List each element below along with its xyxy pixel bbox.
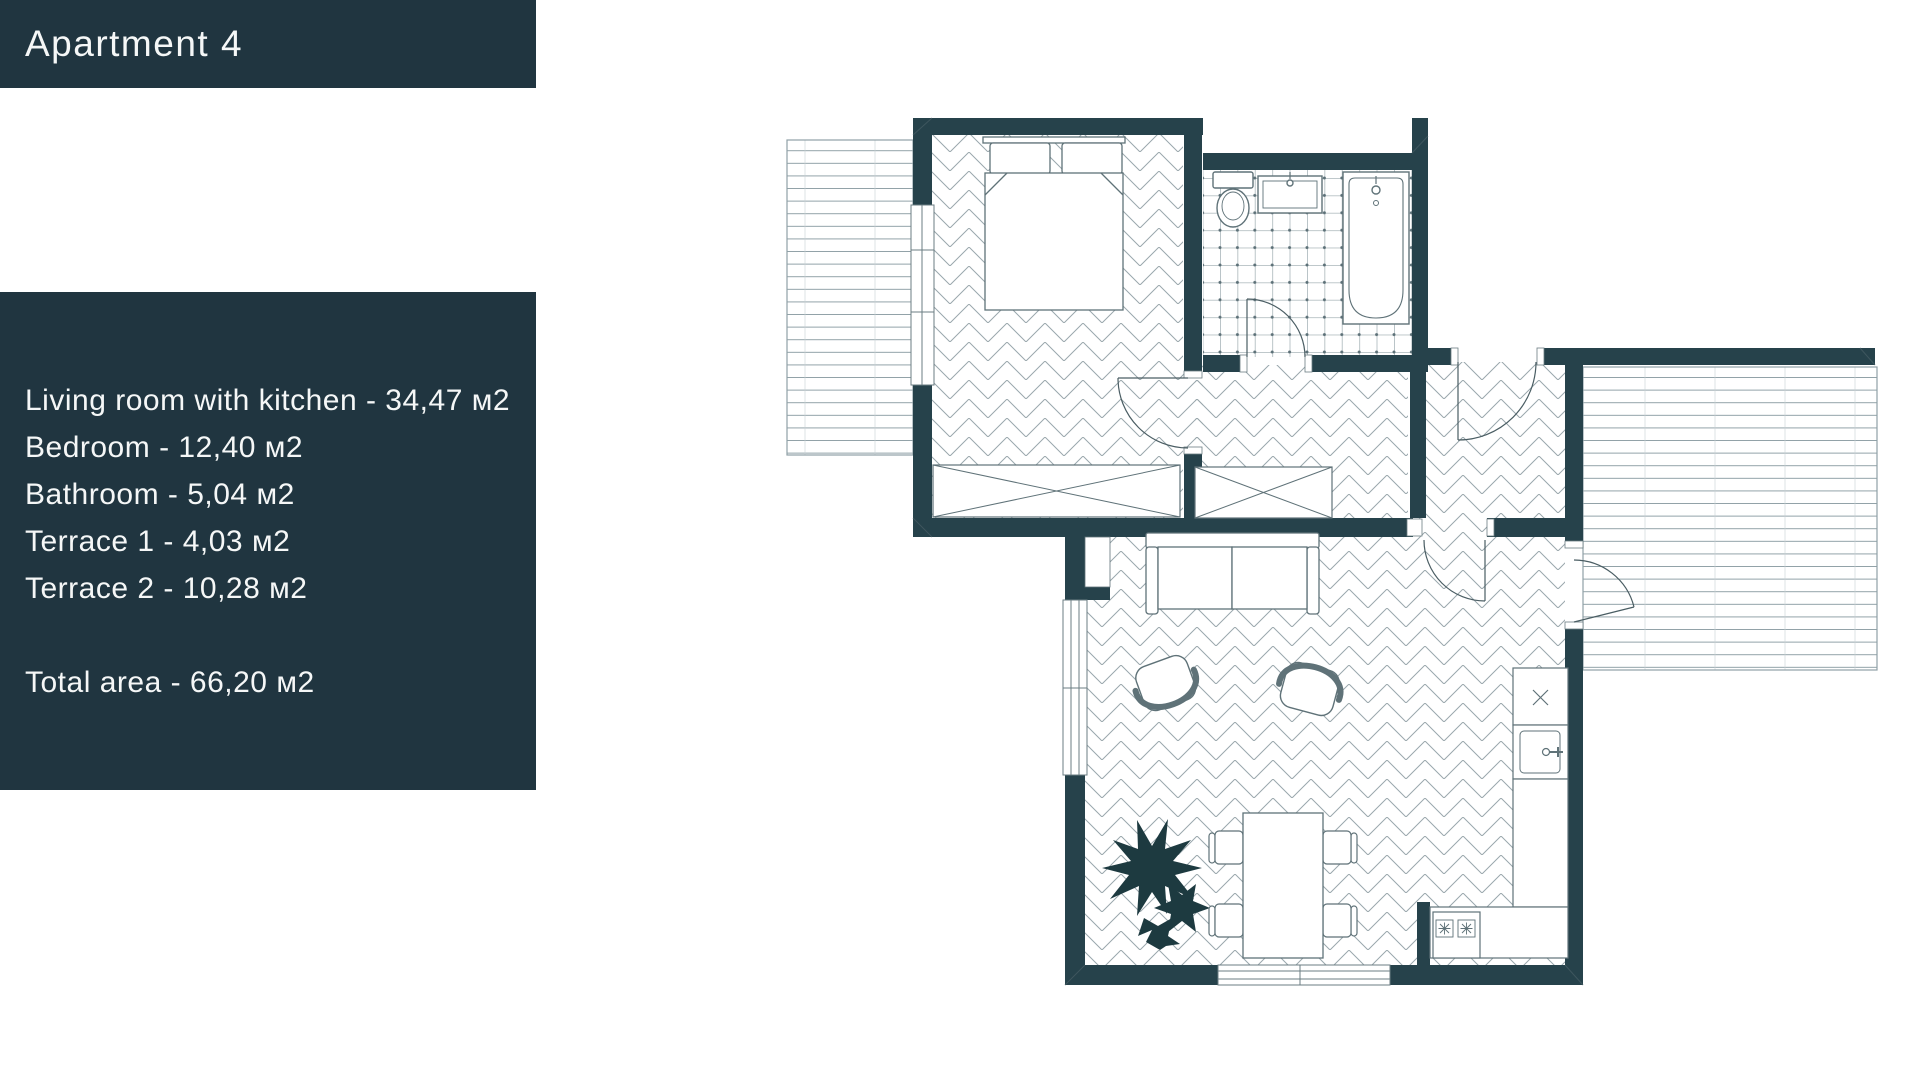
bathroom-sink [1258, 172, 1322, 213]
pillow [990, 143, 1050, 174]
living-room-south-window [1218, 965, 1390, 985]
areas-panel: Living room with kitchen - 34,47 м2 Bedr… [0, 292, 536, 790]
terrace-2-deck [1583, 367, 1877, 670]
area-line-bedroom: Bedroom - 12,40 м2 [25, 424, 536, 471]
hall-wardrobe [1195, 467, 1332, 518]
bedroom-wardrobe [933, 465, 1180, 517]
sofa-cushion [1232, 547, 1307, 609]
page-title: Apartment 4 [25, 23, 243, 65]
bed-mattress [985, 173, 1123, 310]
sofa-arm [1307, 547, 1319, 614]
kitchen-faucet [1543, 749, 1550, 756]
living-room-west-window [1063, 600, 1087, 775]
kitchen-counter-run [1513, 779, 1568, 907]
sofa-arm [1146, 547, 1158, 614]
sofa-back [1146, 533, 1319, 548]
area-line-bathroom: Bathroom - 5,04 м2 [25, 471, 536, 518]
toilet [1213, 172, 1253, 227]
total-area-line: Total area - 66,20 м2 [25, 659, 536, 706]
bed-headboard [983, 137, 1125, 143]
header-panel: Apartment 4 [0, 0, 536, 88]
sofa [1146, 533, 1319, 614]
table-top [1243, 813, 1323, 958]
wall-niche [1085, 537, 1110, 587]
bathtub [1343, 172, 1409, 324]
bedroom-terrace-window [911, 205, 934, 385]
terrace-1-deck [787, 140, 913, 455]
area-line-terrace-1: Terrace 1 - 4,03 м2 [25, 518, 536, 565]
sofa-cushion [1158, 547, 1232, 609]
area-line-living-room: Living room with kitchen - 34,47 м2 [25, 377, 536, 424]
pillow [1062, 143, 1122, 174]
kitchen-unit [1513, 668, 1568, 725]
page: Apartment 4 Living room with kitchen - 3… [0, 0, 1920, 1080]
area-line-terrace-2: Terrace 2 - 10,28 м2 [25, 565, 536, 612]
entrance-hall-floor [1413, 362, 1565, 537]
